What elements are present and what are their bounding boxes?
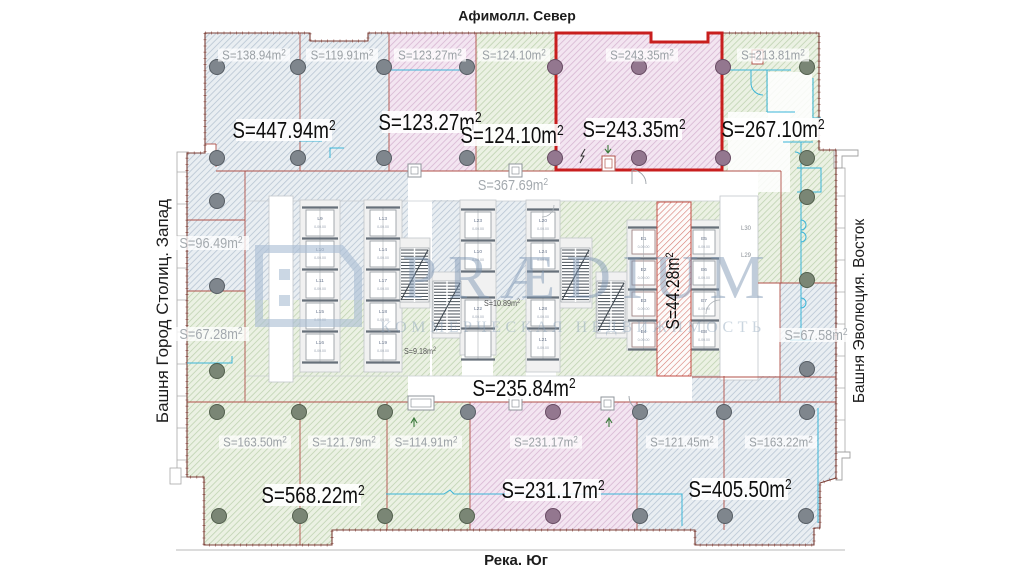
svg-text:0-00.00: 0-00.00 xyxy=(377,225,389,229)
svg-text:0-00.00: 0-00.00 xyxy=(377,349,389,353)
svg-text:S=243.35m2: S=243.35m2 xyxy=(582,116,685,143)
svg-text:0-00.00: 0-00.00 xyxy=(314,225,326,229)
svg-text:S=367.69m2: S=367.69m2 xyxy=(478,176,548,193)
svg-text:S=119.91m2: S=119.91m2 xyxy=(311,47,374,62)
svg-text:L11: L11 xyxy=(316,278,324,284)
svg-text:L17: L17 xyxy=(379,278,387,284)
svg-text:Река. Юг: Река. Юг xyxy=(484,552,548,569)
svg-text:L23: L23 xyxy=(474,218,482,224)
svg-text:L9: L9 xyxy=(317,216,323,222)
svg-text:S=231.17m2: S=231.17m2 xyxy=(501,477,604,504)
svg-text:L14: L14 xyxy=(379,247,387,253)
svg-text:L18: L18 xyxy=(379,309,387,315)
svg-text:S=243.35m2: S=243.35m2 xyxy=(610,47,674,62)
svg-text:S=124.10m2: S=124.10m2 xyxy=(460,122,563,149)
svg-text:L21: L21 xyxy=(539,337,547,343)
svg-text:0-00.00: 0-00.00 xyxy=(472,227,484,231)
svg-text:0-00.00: 0-00.00 xyxy=(698,338,710,342)
svg-text:0-00.00: 0-00.00 xyxy=(638,338,650,342)
svg-text:0-00.00: 0-00.00 xyxy=(377,287,389,291)
svg-text:S=163.22m2: S=163.22m2 xyxy=(749,434,813,449)
svg-text:S=67.58m2: S=67.58m2 xyxy=(784,326,847,343)
svg-text:L19: L19 xyxy=(379,340,387,346)
svg-text:L15: L15 xyxy=(316,309,324,315)
svg-text:S=568.22m2: S=568.22m2 xyxy=(261,482,364,509)
svg-text:S=124.10m2: S=124.10m2 xyxy=(482,47,546,62)
svg-text:L16: L16 xyxy=(316,340,324,346)
svg-text:L20: L20 xyxy=(539,218,547,224)
svg-text:0-00.00: 0-00.00 xyxy=(314,349,326,353)
svg-text:S=9.18m2: S=9.18m2 xyxy=(404,347,436,356)
svg-text:S=405.50m2: S=405.50m2 xyxy=(688,476,791,503)
svg-text:E1: E1 xyxy=(641,236,647,242)
svg-text:L30: L30 xyxy=(741,226,752,232)
svg-text:S=96.49m2: S=96.49m2 xyxy=(179,234,242,251)
svg-text:S=67.28m2: S=67.28m2 xyxy=(179,325,242,342)
svg-text:S=114.91m2: S=114.91m2 xyxy=(395,434,458,449)
svg-text:0-00.00: 0-00.00 xyxy=(314,287,326,291)
svg-text:S=267.10m2: S=267.10m2 xyxy=(721,116,824,143)
svg-text:0-00.00: 0-00.00 xyxy=(314,256,326,260)
svg-text:PRÆDIUM: PRÆDIUM xyxy=(402,244,775,312)
svg-text:0-00.00: 0-00.00 xyxy=(537,346,549,350)
svg-text:Башня Город Столиц. Запад: Башня Город Столиц. Запад xyxy=(153,199,172,423)
svg-text:0-00.00: 0-00.00 xyxy=(377,256,389,260)
svg-text:L13: L13 xyxy=(379,216,387,222)
svg-text:S=121.79m2: S=121.79m2 xyxy=(312,434,376,449)
svg-text:S=138.94m2: S=138.94m2 xyxy=(222,47,286,62)
svg-text:S=163.50m2: S=163.50m2 xyxy=(223,434,287,449)
svg-text:E5: E5 xyxy=(701,236,707,242)
svg-text:Башня Эволюция. Восток: Башня Эволюция. Восток xyxy=(851,219,868,403)
svg-text:S=123.27m2: S=123.27m2 xyxy=(398,47,462,62)
svg-text:S=121.45m2: S=121.45m2 xyxy=(650,434,714,449)
svg-text:S=235.84m2: S=235.84m2 xyxy=(472,375,575,402)
svg-text:0-00.00: 0-00.00 xyxy=(537,227,549,231)
svg-text:S=10.89m2: S=10.89m2 xyxy=(484,299,520,308)
svg-text:S=231.17m2: S=231.17m2 xyxy=(514,434,578,449)
svg-text:Афимолл. Север: Афимолл. Север xyxy=(458,8,576,24)
svg-text:S=44.28m2: S=44.28m2 xyxy=(662,252,684,330)
svg-text:S=447.94m2: S=447.94m2 xyxy=(232,117,335,144)
svg-text:S=213.81m2: S=213.81m2 xyxy=(741,47,805,62)
svg-text:КОММЕРЧЕСКАЯ НЕДВИЖИМОСТЬ: КОММЕРЧЕСКАЯ НЕДВИЖИМОСТЬ xyxy=(380,319,765,336)
